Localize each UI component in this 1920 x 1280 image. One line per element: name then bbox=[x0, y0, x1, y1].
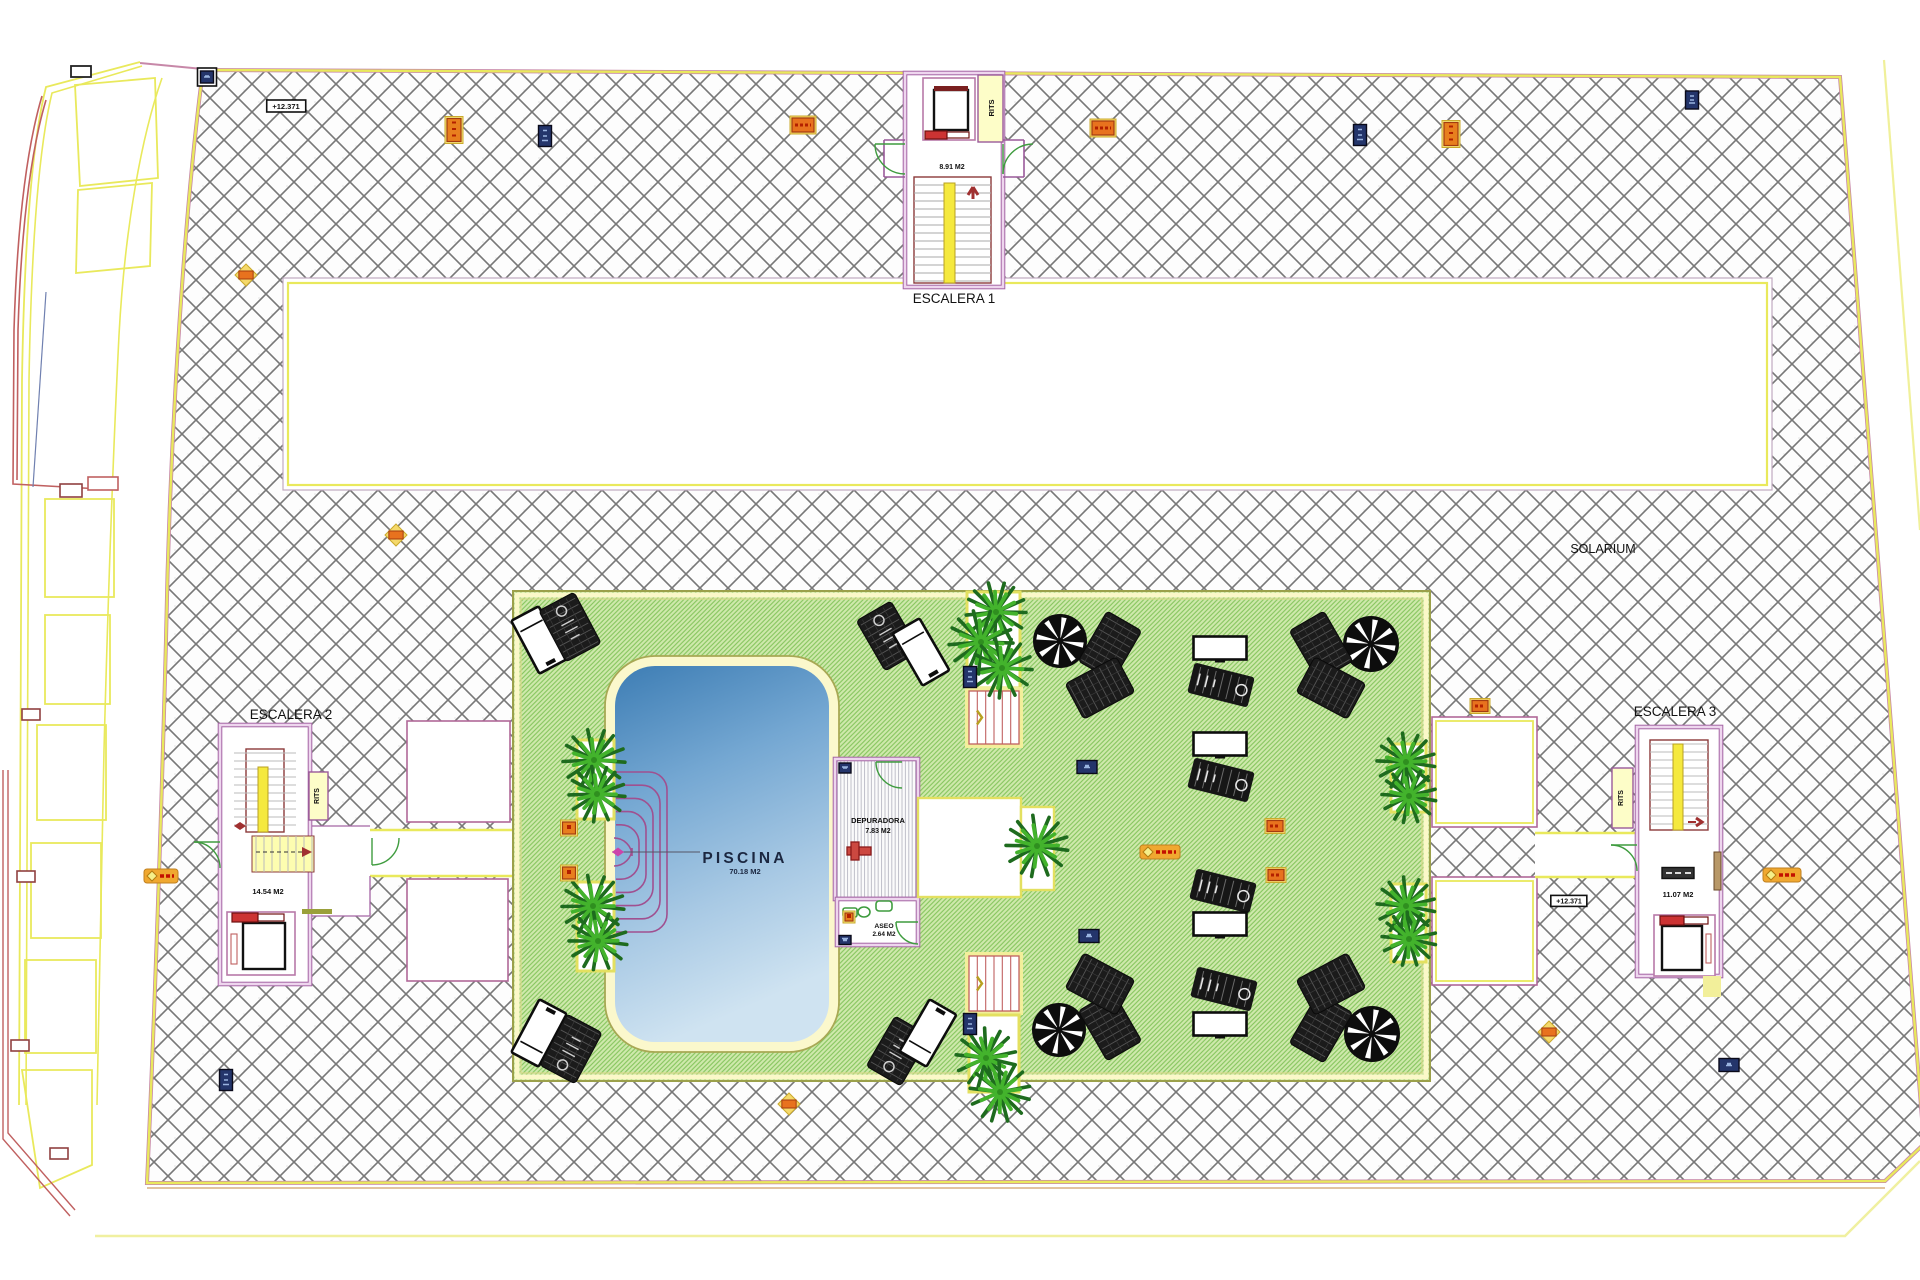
svg-text:RITS: RITS bbox=[987, 99, 996, 116]
svg-text:8.91 M2: 8.91 M2 bbox=[939, 164, 964, 171]
svg-text:70.18 M2: 70.18 M2 bbox=[729, 867, 760, 876]
svg-text:DEPURADORA: DEPURADORA bbox=[851, 816, 905, 825]
svg-text:ESCALERA 3: ESCALERA 3 bbox=[1634, 704, 1717, 719]
svg-text:+12.371: +12.371 bbox=[1556, 899, 1582, 906]
svg-text:+12.371: +12.371 bbox=[272, 102, 299, 111]
svg-text:SOLARIUM: SOLARIUM bbox=[1570, 542, 1635, 556]
svg-text:14.54 M2: 14.54 M2 bbox=[252, 887, 283, 896]
svg-text:RITS: RITS bbox=[1618, 790, 1625, 806]
svg-text:ESCALERA 1: ESCALERA 1 bbox=[913, 291, 996, 306]
svg-text:ASEO: ASEO bbox=[874, 923, 893, 930]
svg-text:7.83 M2: 7.83 M2 bbox=[865, 828, 890, 835]
svg-text:PISCINA: PISCINA bbox=[702, 850, 787, 867]
svg-text:11.07 M2: 11.07 M2 bbox=[1663, 890, 1694, 899]
svg-text:ESCALERA 2: ESCALERA 2 bbox=[250, 707, 333, 722]
svg-text:2.64 M2: 2.64 M2 bbox=[872, 931, 896, 938]
svg-text:RITS: RITS bbox=[314, 788, 321, 804]
